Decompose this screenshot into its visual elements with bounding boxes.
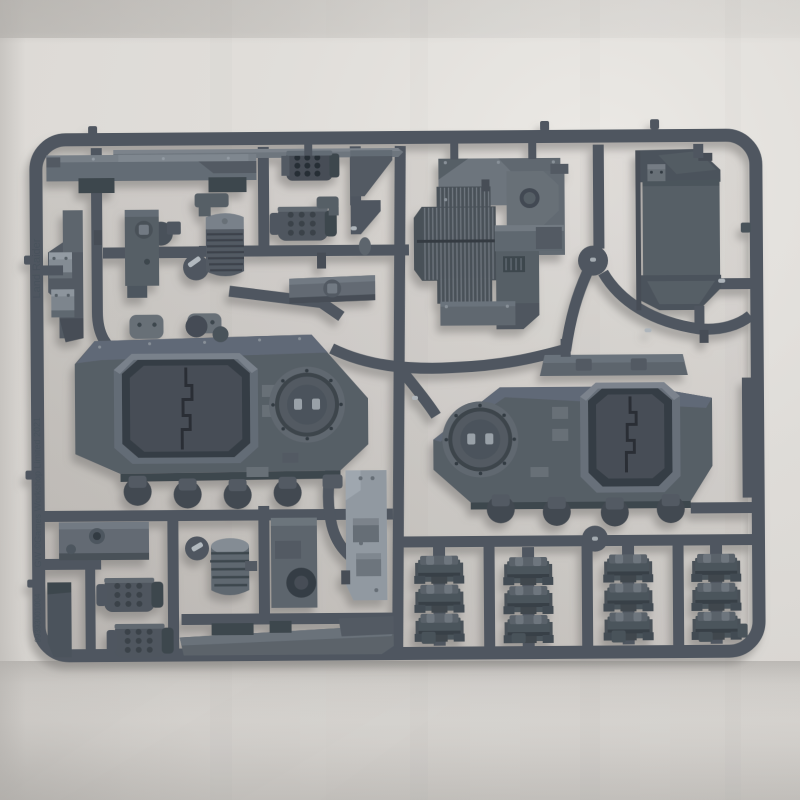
svg-text:Land Raider: Land Raider	[31, 238, 43, 298]
svg-text:GW ©Games Workshop Limited 20: GW ©Games Workshop Limited 2021	[32, 417, 43, 568]
svg-text:99393001004: 99393001004	[33, 593, 42, 643]
